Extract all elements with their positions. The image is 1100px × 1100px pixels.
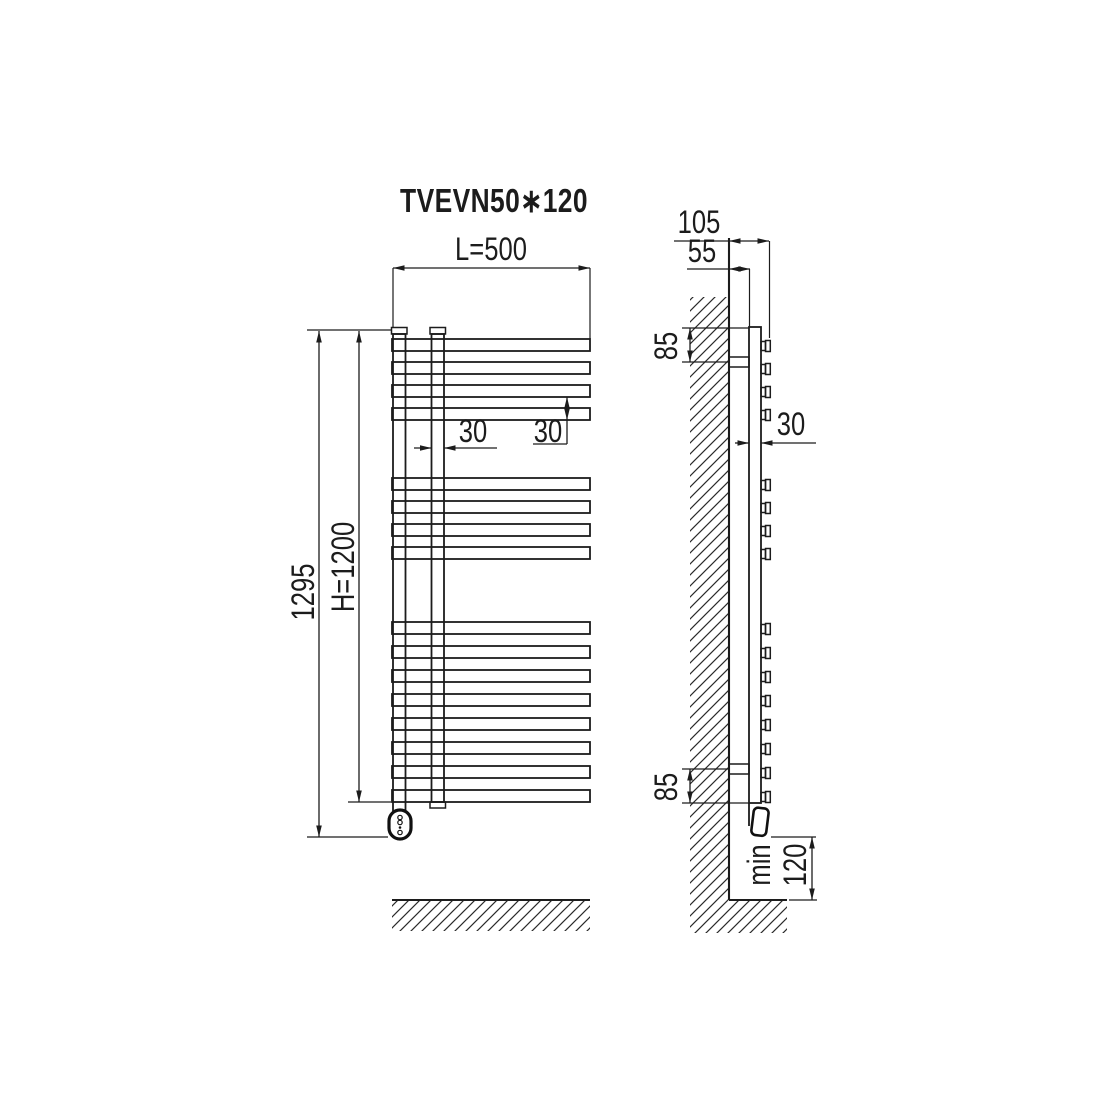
towel-bars-top-group: [392, 339, 590, 420]
front-view: L=500 1295 H=1200: [286, 232, 590, 931]
dim-tube-width-label: 30: [459, 414, 487, 449]
mounting-bracket-bottom: [729, 764, 749, 774]
wall-hatch: [690, 238, 729, 933]
title-label: TVEVN50∗120: [400, 183, 588, 219]
dim-bottom-bracket-label: 85: [649, 773, 684, 801]
tube-top-cap-right: [430, 328, 446, 335]
dim-width-label: L=500: [455, 232, 527, 267]
side-view: 105 55 85: [649, 205, 817, 933]
dim-clearance-value-label: 120: [778, 844, 813, 887]
floor-hatch-side: [729, 900, 787, 933]
heating-element-side: [749, 803, 769, 836]
collector-tube-right: [432, 334, 445, 802]
heating-element-front: [389, 810, 411, 839]
towel-bars-bottom-group: [392, 622, 590, 802]
dim-top-bracket-label: 85: [649, 332, 684, 360]
dim-height-label: H=1200: [326, 522, 361, 612]
tube-top-cap-left: [392, 328, 408, 335]
dim-overall-height-label: 1295: [286, 564, 321, 621]
tube-bottom-cap: [430, 802, 446, 808]
floor-hatch-front: [392, 900, 590, 931]
bar-end-tabs: [761, 341, 770, 803]
collector-tube-left: [393, 334, 406, 812]
mounting-bracket-top: [729, 357, 749, 367]
technical-drawing-page: TVEVN50∗120 L=500 1295 H=1200: [0, 0, 1100, 1100]
radiator-side-tube: [749, 327, 761, 803]
dim-wall-to-tube-label: 55: [688, 234, 716, 269]
radiator-dimension-drawing: TVEVN50∗120 L=500 1295 H=1200: [0, 0, 1100, 1100]
towel-bars-middle-group: [392, 478, 590, 559]
dim-min-clearance-label: min: [742, 844, 777, 885]
dim-tube-depth-label: 30: [777, 407, 805, 442]
